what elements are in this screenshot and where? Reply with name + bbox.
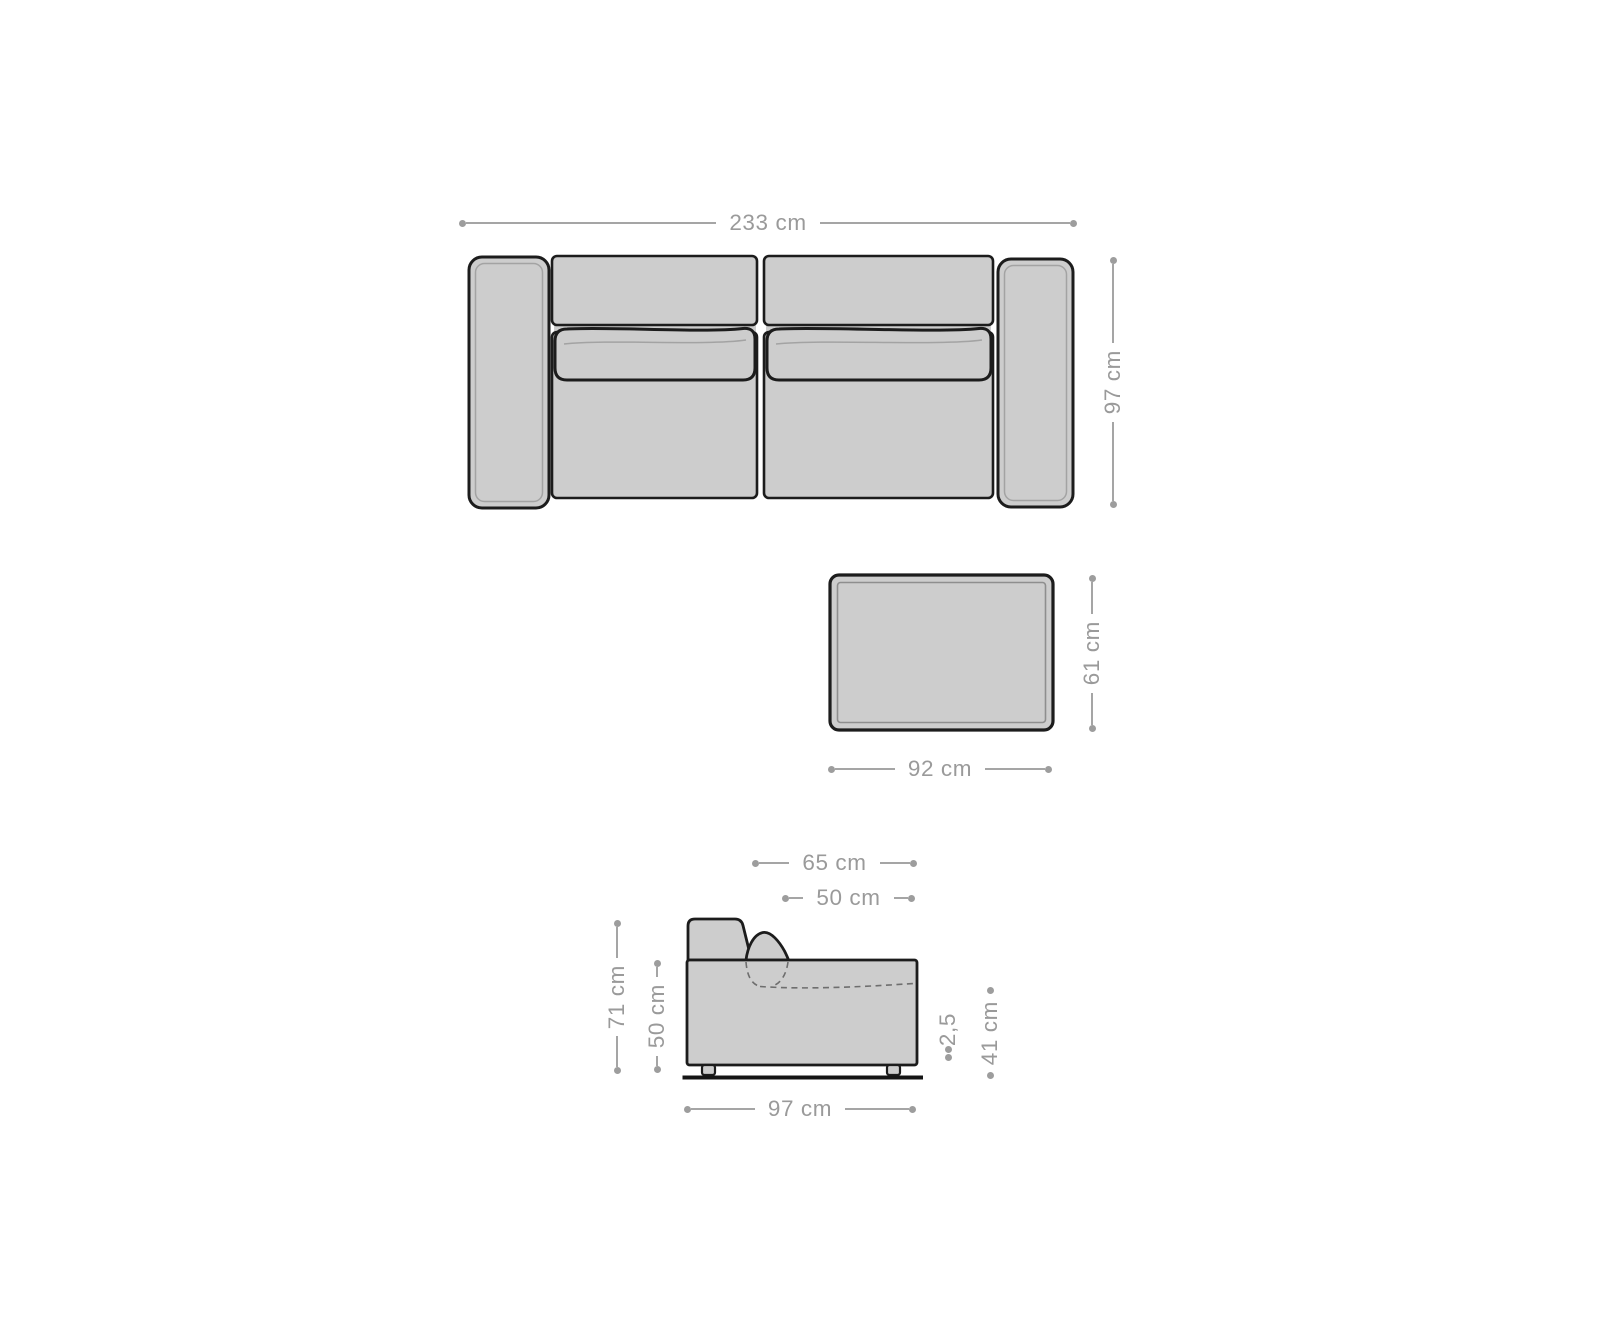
dim-side-seat-depth: 50 cm (782, 888, 915, 908)
side-pillow (746, 932, 789, 960)
dim-line (1091, 693, 1093, 725)
side-armrest-body (687, 960, 917, 1065)
dim-endpoint-dot (945, 1046, 952, 1053)
dim-line (985, 768, 1045, 770)
dim-label: 65 cm (789, 852, 879, 875)
side-front-leg (702, 1065, 715, 1075)
sofa-seat-cushion-left (555, 328, 755, 380)
dim-endpoint-dot (654, 1066, 661, 1073)
dim-line (789, 897, 803, 899)
dim-endpoint-dot (614, 920, 621, 927)
sofa-side-view-drawing (680, 905, 930, 1085)
dim-side-seat-height: 41 cm (980, 987, 1000, 1076)
dim-label: 92 cm (895, 758, 985, 781)
sofa-seat-cushion-right (767, 328, 991, 380)
ottoman-top-view-drawing (825, 570, 1058, 736)
dim-label: 233 cm (716, 212, 819, 235)
dim-side-overall-height: 71 cm (607, 920, 627, 1074)
side-back-leg (887, 1065, 900, 1075)
sofa-back-cushion-left (552, 256, 757, 325)
dim-endpoint-dot (987, 1072, 994, 1079)
dim-endpoint-dot (1110, 501, 1117, 508)
dim-line (616, 927, 618, 958)
dim-endpoint-dot (828, 766, 835, 773)
dim-endpoint-dot (1070, 220, 1077, 227)
sofa-left-armrest (469, 257, 549, 508)
sofa-back-cushion-right (764, 256, 993, 325)
dim-endpoint-dot (910, 860, 917, 867)
dim-side-armrest-height: 50 cm (647, 960, 667, 1073)
dim-endpoint-dot (987, 987, 994, 994)
dim-label: 97 cm (755, 1098, 845, 1121)
dim-sofa-overall-depth: 97 cm (1103, 257, 1123, 508)
furniture-dimension-diagram: 233 cm 97 cm 61 cm 92 cm 65 cm (0, 0, 1600, 1333)
dim-ottoman-width: 92 cm (828, 759, 1052, 779)
dim-sofa-overall-width: 233 cm (459, 213, 1077, 233)
dim-endpoint-dot (459, 220, 466, 227)
dim-endpoint-dot (945, 1054, 952, 1061)
dim-line (656, 967, 658, 977)
dim-label: 97 cm (1102, 343, 1125, 421)
dim-line (616, 1036, 618, 1067)
dim-endpoint-dot (752, 860, 759, 867)
dim-endpoint-dot (909, 1106, 916, 1113)
dim-line (820, 222, 1070, 224)
dim-line (1112, 264, 1114, 343)
dim-endpoint-dot (1110, 257, 1117, 264)
side-backrest (688, 919, 752, 960)
dim-label: 61 cm (1081, 614, 1104, 692)
dim-label: 50 cm (646, 977, 669, 1055)
dim-line (759, 862, 789, 864)
dim-endpoint-dot (1045, 766, 1052, 773)
dim-endpoint-dot (908, 895, 915, 902)
dim-line (691, 1108, 755, 1110)
dim-side-base-depth: 97 cm (684, 1099, 916, 1119)
dim-label: 71 cm (606, 958, 629, 1036)
dim-line (845, 1108, 909, 1110)
dim-endpoint-dot (684, 1106, 691, 1113)
dim-endpoint-dot (1089, 575, 1096, 582)
dim-line (1091, 582, 1093, 614)
dim-label: 2,5 (937, 1013, 960, 1046)
dim-line (1112, 422, 1114, 501)
dim-ottoman-depth: 61 cm (1082, 575, 1102, 732)
dim-label: 41 cm (979, 994, 1002, 1072)
dim-endpoint-dot (614, 1067, 621, 1074)
dim-line (894, 897, 908, 899)
dim-endpoint-dot (1089, 725, 1096, 732)
sofa-top-view-drawing (460, 248, 1080, 514)
dim-line (880, 862, 910, 864)
dim-label: 50 cm (803, 887, 893, 910)
dim-line (656, 1056, 658, 1066)
dim-line (466, 222, 716, 224)
dim-endpoint-dot (782, 895, 789, 902)
dim-side-leg-height: 2,5 (938, 1013, 958, 1077)
sofa-right-armrest (998, 259, 1073, 507)
dim-side-overall-depth: 65 cm (752, 853, 917, 873)
dim-endpoint-dot (654, 960, 661, 967)
dim-line (835, 768, 895, 770)
ottoman-body (830, 575, 1053, 730)
